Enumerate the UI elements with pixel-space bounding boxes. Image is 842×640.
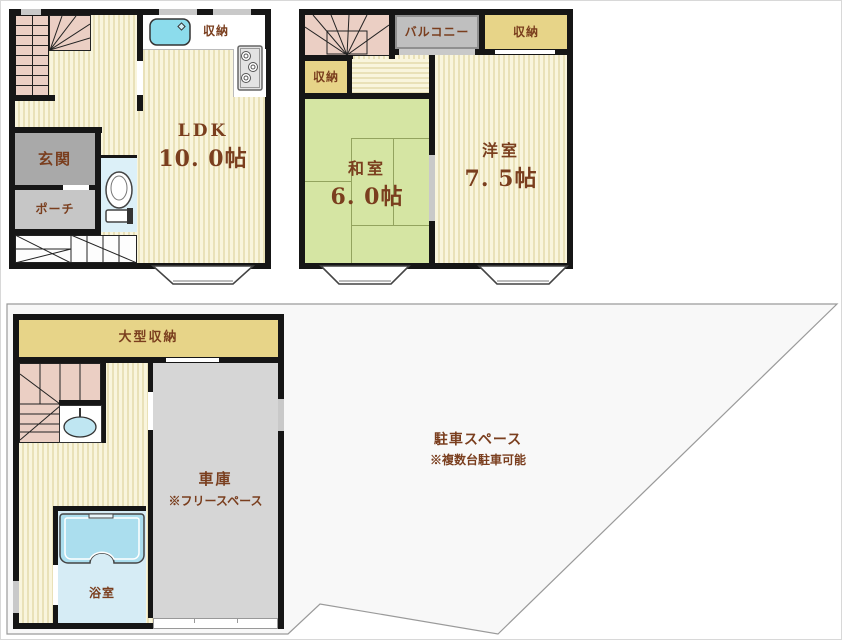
window xyxy=(278,399,284,431)
western-labels: 洋室 7. 5帖 xyxy=(435,137,567,193)
window xyxy=(213,9,251,15)
balcony: バルコニー xyxy=(395,15,479,49)
garage-note: ※フリースペース xyxy=(153,492,278,509)
door-opening xyxy=(63,185,89,190)
window xyxy=(159,9,197,15)
tatami-labels: 和室 6. 0帖 xyxy=(305,155,429,211)
western-room: 洋室 7. 5帖 xyxy=(435,55,567,263)
garage-labels: 車庫 ※フリースペース xyxy=(153,468,278,509)
stairs-winder xyxy=(49,15,91,51)
parking-labels: 駐車スペース ※複数台駐車可能 xyxy=(393,429,563,468)
door-opening xyxy=(137,61,143,95)
closet-left: 収納 xyxy=(305,61,347,93)
wash-basin-icon xyxy=(59,405,102,443)
door-opening xyxy=(166,358,219,362)
entry-steps xyxy=(15,235,137,263)
tatami-room: 和室 6. 0帖 xyxy=(305,99,429,263)
garage-shutter xyxy=(153,618,278,629)
bathtub-icon xyxy=(59,513,145,569)
toilet-room xyxy=(101,155,137,232)
entrance-room: 玄関 xyxy=(15,133,95,185)
bay-window-western xyxy=(477,265,569,287)
room-size-western: 7. 5帖 xyxy=(435,161,567,193)
window xyxy=(13,581,19,613)
bay-window-tatami xyxy=(319,265,411,287)
room-name-ldk: LDK xyxy=(141,121,265,141)
door-opening xyxy=(148,392,153,430)
garage: 車庫 ※フリースペース xyxy=(153,363,278,618)
ldk-labels: LDK 10. 0帖 xyxy=(141,121,265,173)
room-name-western: 洋室 xyxy=(435,137,567,161)
floor-plan-ground: 大型収納 xyxy=(13,314,284,629)
sliding-door xyxy=(429,155,435,221)
room-name-tatami: 和室 xyxy=(305,155,429,179)
floor-plan-bedrooms: バルコニー 収納 収納 和室 6. 0帖 xyxy=(299,9,573,269)
stairs-straight xyxy=(15,15,49,97)
wall xyxy=(15,95,55,101)
large-storage-label: 大型収納 xyxy=(118,330,178,346)
stove-icon xyxy=(237,45,263,91)
window xyxy=(399,49,475,55)
door-opening xyxy=(53,565,58,605)
floor-plan-ldk: 収納 玄関 ポーチ xyxy=(9,9,271,269)
large-storage: 大型収納 xyxy=(19,320,278,357)
closet-top-right: 収納 xyxy=(485,15,567,49)
closet-label: 収納 xyxy=(183,21,249,41)
room-size-tatami: 6. 0帖 xyxy=(305,179,429,211)
bay-window-ldk xyxy=(151,265,255,287)
garage-label: 車庫 xyxy=(153,468,278,489)
stairs-winder-2 xyxy=(305,15,389,56)
bath-label: 浴室 xyxy=(58,583,146,603)
room-size-ldk: 10. 0帖 xyxy=(141,141,265,173)
parking-label: 駐車スペース xyxy=(393,429,563,449)
window xyxy=(21,9,41,15)
floorplan-canvas: 収納 玄関 ポーチ xyxy=(0,0,842,640)
bathroom: 浴室 xyxy=(58,511,146,623)
parking-note: ※複数台駐車可能 xyxy=(393,451,563,468)
door-opening xyxy=(495,50,555,54)
porch-room: ポーチ xyxy=(15,190,95,229)
wall xyxy=(305,93,429,99)
